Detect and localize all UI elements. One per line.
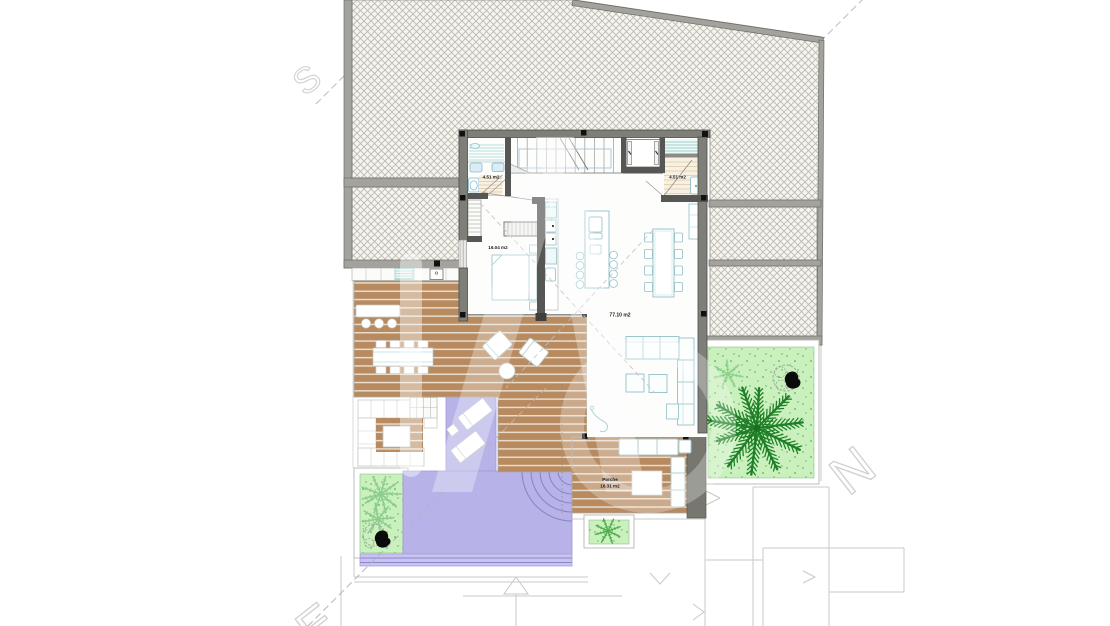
svg-text:4.51 m2: 4.51 m2 — [669, 175, 686, 180]
svg-text:16.31 m2: 16.31 m2 — [600, 484, 620, 489]
svg-text:4.51 m2: 4.51 m2 — [483, 175, 500, 180]
svg-text:16.04 m2: 16.04 m2 — [488, 245, 508, 250]
svg-text:77.10 m2: 77.10 m2 — [609, 313, 630, 319]
svg-text:Porche: Porche — [602, 477, 618, 482]
